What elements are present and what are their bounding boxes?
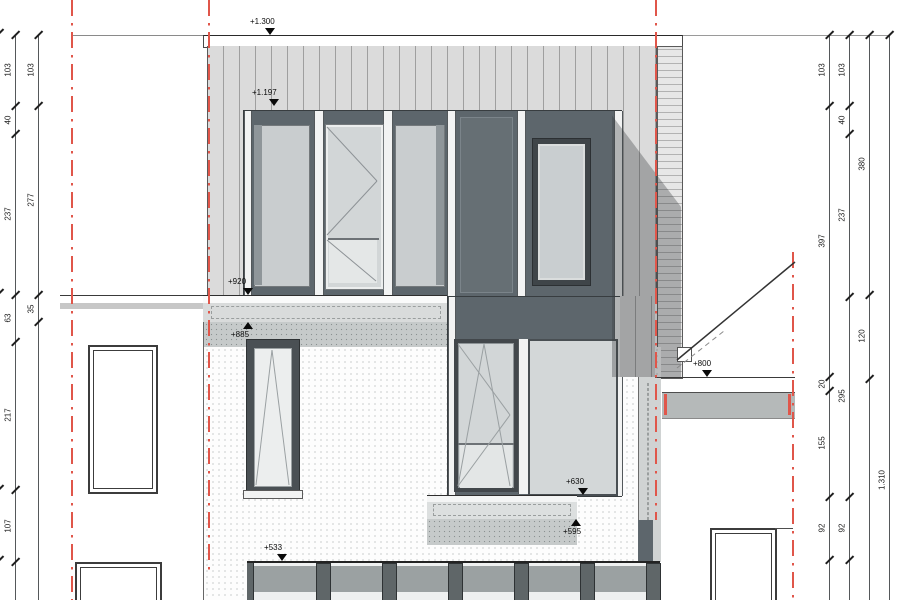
boundary-line-far-right xyxy=(792,252,794,600)
elevation-label: +885 xyxy=(231,330,249,339)
fascia-red-mark xyxy=(788,394,791,415)
lintel-line xyxy=(775,528,793,530)
elevation-marker-triangle xyxy=(702,370,712,377)
mullion xyxy=(383,111,393,297)
neighbor-window-upper-glass xyxy=(93,350,153,489)
dim-label: 103 xyxy=(818,63,827,76)
corner-column-dark-base xyxy=(638,520,653,562)
dim-label: 295 xyxy=(838,389,847,402)
mullion xyxy=(314,111,324,297)
elevation-marker-triangle xyxy=(571,519,581,526)
glazing-post xyxy=(580,563,595,600)
elevation-marker-triangle xyxy=(269,99,279,106)
boundary-line-right xyxy=(655,0,657,520)
dim-label: 103 xyxy=(27,63,36,76)
fascia-band xyxy=(662,392,795,419)
mullion xyxy=(244,111,252,297)
elevation-label: +595 xyxy=(563,527,581,536)
neighbor-window-lower xyxy=(75,562,162,600)
dim-label: 380 xyxy=(858,157,867,170)
middle-left-window-glass xyxy=(254,348,292,487)
elevation-label: +920 xyxy=(228,277,246,286)
glazing-post xyxy=(316,563,331,600)
neighbor-roof-shadow xyxy=(60,303,203,309)
dim-tick xyxy=(0,484,4,493)
ground-glazing-band xyxy=(247,561,660,600)
dim-label: 237 xyxy=(4,207,13,220)
tilt-turn-window xyxy=(454,339,518,492)
glazing-post xyxy=(382,563,397,600)
level-line-top xyxy=(72,35,203,36)
lower-sash-glass xyxy=(460,445,512,488)
dim-label: 92 xyxy=(818,524,827,533)
glass-reveal xyxy=(436,125,444,285)
canopy-band xyxy=(427,502,577,520)
neighbor-window-right xyxy=(710,528,777,600)
fascia-red-mark xyxy=(664,394,667,415)
dim-label: 107 xyxy=(4,519,13,532)
middle-left-window xyxy=(246,339,300,496)
level-line-top-right xyxy=(681,35,889,36)
elevation-marker-triangle xyxy=(277,554,287,561)
dim-line-left-outer xyxy=(38,35,39,600)
pier-panel xyxy=(460,117,513,293)
fixed-glass-pane xyxy=(254,125,310,287)
dim-label: 103 xyxy=(4,63,13,76)
elevation-label: +1.300 xyxy=(250,17,275,26)
hidden-edge-dashed xyxy=(647,383,649,525)
elevation-marker-triangle xyxy=(243,322,253,329)
dim-line-right-3 xyxy=(869,35,870,600)
elevation-marker-triangle xyxy=(243,288,253,295)
lower-sash-glass xyxy=(329,240,377,283)
elevation-label: +1.197 xyxy=(252,88,277,97)
level-line-800 xyxy=(655,377,795,379)
glazing-post xyxy=(247,563,254,600)
dim-label: 155 xyxy=(818,436,827,449)
dim-label: 1.310 xyxy=(878,470,887,490)
elevation-label: +533 xyxy=(264,543,282,552)
fixed-glass-large xyxy=(528,339,618,496)
upper-window-band xyxy=(243,110,622,298)
neighbor-window-lower-glass xyxy=(80,567,157,600)
neighbor-window-right-glass xyxy=(715,533,772,600)
glazed-bay xyxy=(447,296,622,497)
elevation-drawing: 103 40 237 63 217 107 103 277 35 103 397… xyxy=(0,0,900,600)
dim-label: 20 xyxy=(818,380,827,389)
boundary-line-far-left xyxy=(71,0,73,600)
glass-reveal xyxy=(254,125,262,285)
upper-framed-window xyxy=(532,138,591,286)
elevation-marker-triangle xyxy=(265,28,275,35)
slab-band xyxy=(203,303,447,323)
dim-label: 237 xyxy=(838,208,847,221)
boundary-line-left xyxy=(208,0,210,572)
dim-label: 63 xyxy=(4,314,13,323)
dim-tick xyxy=(0,288,4,297)
dim-label: 103 xyxy=(838,63,847,76)
neighbor-window-upper xyxy=(88,345,158,494)
hidden-edge-dashed xyxy=(433,504,571,516)
middle-left-window-sill xyxy=(243,490,303,499)
dim-tick xyxy=(0,28,4,37)
dim-line-right-1 xyxy=(829,35,830,600)
dim-label: 397 xyxy=(818,234,827,247)
elevation-marker-triangle xyxy=(578,488,588,495)
dim-label: 92 xyxy=(838,524,847,533)
glazing-post xyxy=(448,563,463,600)
dim-line-right-2 xyxy=(849,35,850,600)
glazing-post xyxy=(646,563,661,600)
mullion xyxy=(447,111,456,297)
hidden-edge-dashed xyxy=(211,306,441,319)
elevation-label: +630 xyxy=(566,477,584,486)
dim-label: 217 xyxy=(4,408,13,421)
apron-band xyxy=(427,519,577,545)
dim-label: 40 xyxy=(838,116,847,125)
roof-slope-line xyxy=(677,262,795,360)
dim-label: 277 xyxy=(27,193,36,206)
dim-label: 40 xyxy=(4,116,13,125)
dim-label: 35 xyxy=(27,305,36,314)
upper-framed-window-glass xyxy=(538,144,585,280)
elevation-label: +800 xyxy=(693,359,711,368)
mullion xyxy=(517,111,526,297)
dim-line-right-4 xyxy=(889,35,890,600)
dim-line-left-inner xyxy=(15,35,16,600)
dim-label: 120 xyxy=(858,329,867,342)
dim-tick xyxy=(0,555,4,564)
glazing-post xyxy=(514,563,529,600)
roof-step-box xyxy=(677,347,692,362)
